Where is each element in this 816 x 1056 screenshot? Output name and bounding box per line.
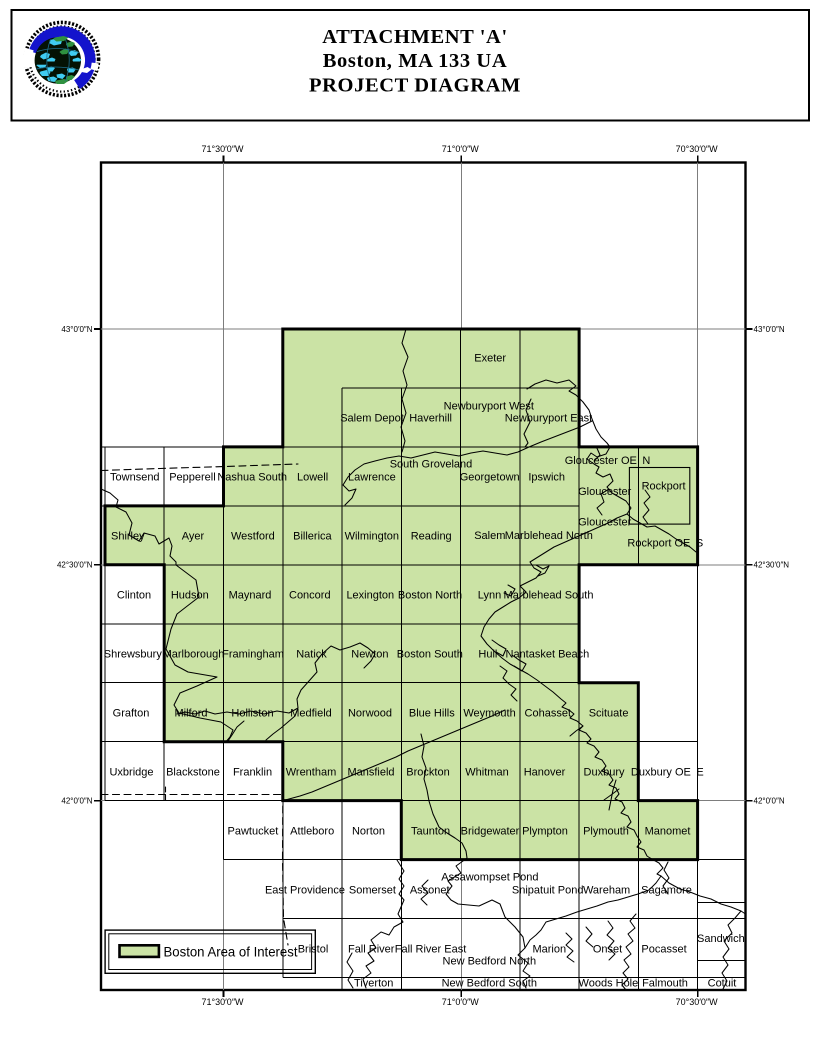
- svg-text:Billerica: Billerica: [293, 530, 332, 542]
- svg-text:Newburyport West: Newburyport West: [444, 401, 534, 413]
- svg-text:PROJECT DIAGRAM: PROJECT DIAGRAM: [309, 75, 521, 97]
- svg-text:Shrewsbury: Shrewsbury: [104, 648, 163, 660]
- svg-text:Taunton: Taunton: [411, 825, 450, 837]
- svg-text:Pocasset: Pocasset: [641, 943, 686, 955]
- svg-text:Cohasset: Cohasset: [525, 707, 571, 719]
- svg-text:Medfield: Medfield: [290, 707, 332, 719]
- svg-text:Attleboro: Attleboro: [290, 825, 334, 837]
- svg-text:Duxbury: Duxbury: [584, 766, 625, 778]
- svg-text:Franklin: Franklin: [233, 766, 272, 778]
- svg-text:ATTACHMENT 'A': ATTACHMENT 'A': [322, 26, 508, 48]
- svg-text:Framingham: Framingham: [222, 648, 284, 660]
- svg-text:Sandwich: Sandwich: [697, 933, 745, 945]
- svg-text:71°0′0″W: 71°0′0″W: [442, 144, 479, 154]
- svg-text:Gloucester: Gloucester: [578, 517, 632, 529]
- svg-text:Gloucester: Gloucester: [578, 486, 632, 498]
- svg-text:42°0′0″N: 42°0′0″N: [754, 796, 785, 805]
- svg-text:Bristol: Bristol: [298, 943, 329, 955]
- svg-text:Woods Hole: Woods Hole: [579, 977, 639, 989]
- svg-text:Lawrence: Lawrence: [348, 472, 396, 484]
- svg-text:Westford: Westford: [231, 530, 275, 542]
- svg-text:Marion: Marion: [532, 943, 566, 955]
- svg-text:Norton: Norton: [352, 825, 385, 837]
- svg-text:Rockport: Rockport: [642, 481, 686, 493]
- svg-text:Reading: Reading: [411, 530, 452, 542]
- svg-text:Milford: Milford: [174, 707, 207, 719]
- svg-text:Hull: Hull: [478, 648, 497, 660]
- svg-text:43°0′0″N: 43°0′0″N: [754, 325, 785, 334]
- svg-text:43°0′0″N: 43°0′0″N: [61, 325, 92, 334]
- svg-text:Plympton: Plympton: [522, 825, 568, 837]
- svg-text:Assonet: Assonet: [410, 884, 450, 896]
- svg-text:Boston North: Boston North: [398, 589, 462, 601]
- svg-text:Townsend: Townsend: [110, 472, 160, 484]
- svg-text:42°0′0″N: 42°0′0″N: [61, 796, 92, 805]
- svg-text:Whitman: Whitman: [465, 766, 508, 778]
- svg-text:Duxbury OE E: Duxbury OE E: [631, 766, 704, 778]
- svg-text:70°30′0″W: 70°30′0″W: [676, 997, 718, 1007]
- svg-text:71°30′0″W: 71°30′0″W: [202, 144, 244, 154]
- svg-text:Tiverton: Tiverton: [354, 977, 393, 989]
- svg-text:Nantasket Beach: Nantasket Beach: [506, 648, 590, 660]
- svg-text:Nashua South: Nashua South: [217, 472, 287, 484]
- svg-text:Exeter: Exeter: [474, 353, 506, 365]
- svg-text:East Providence: East Providence: [265, 884, 345, 896]
- svg-text:Scituate: Scituate: [589, 707, 629, 719]
- svg-text:Gloucester OE N: Gloucester OE N: [565, 455, 651, 467]
- svg-text:Falmouth: Falmouth: [642, 977, 688, 989]
- svg-text:Norwood: Norwood: [348, 707, 392, 719]
- svg-text:Salem: Salem: [474, 530, 505, 542]
- svg-text:Lowell: Lowell: [297, 472, 328, 484]
- svg-text:42°30′0″N: 42°30′0″N: [754, 561, 790, 570]
- svg-text:Bridgewater: Bridgewater: [461, 825, 520, 837]
- svg-text:Haverhill: Haverhill: [409, 412, 452, 424]
- svg-text:Boston South: Boston South: [397, 648, 463, 660]
- svg-text:Clinton: Clinton: [117, 589, 151, 601]
- svg-text:Uxbridge: Uxbridge: [109, 766, 153, 778]
- svg-text:Marblehead North: Marblehead North: [505, 530, 593, 542]
- svg-text:Holliston: Holliston: [231, 707, 273, 719]
- svg-text:Fall River: Fall River: [348, 943, 395, 955]
- svg-text:Wrentham: Wrentham: [286, 766, 337, 778]
- svg-text:Ayer: Ayer: [182, 530, 205, 542]
- svg-text:Brockton: Brockton: [406, 766, 449, 778]
- svg-text:Assawompset Pond: Assawompset Pond: [441, 872, 538, 884]
- svg-text:Georgetown: Georgetown: [460, 472, 520, 484]
- svg-text:Hudson: Hudson: [171, 589, 209, 601]
- svg-text:Newton: Newton: [351, 648, 388, 660]
- svg-text:Maynard: Maynard: [229, 589, 272, 601]
- svg-text:Marlborough: Marlborough: [163, 648, 225, 660]
- svg-text:Onset: Onset: [593, 943, 622, 955]
- svg-text:South Groveland: South Groveland: [390, 459, 473, 471]
- svg-text:Natick: Natick: [296, 648, 327, 660]
- svg-text:71°0′0″W: 71°0′0″W: [442, 997, 479, 1007]
- svg-text:Somerset: Somerset: [349, 884, 396, 896]
- svg-text:Hanover: Hanover: [524, 766, 566, 778]
- svg-text:Grafton: Grafton: [113, 707, 150, 719]
- svg-text:Blue Hills: Blue Hills: [409, 707, 455, 719]
- svg-text:Pawtucket: Pawtucket: [228, 825, 279, 837]
- svg-text:Rockport OE S: Rockport OE S: [627, 537, 703, 549]
- svg-text:Wareham: Wareham: [583, 884, 630, 896]
- svg-text:Cotuit: Cotuit: [708, 977, 737, 989]
- svg-text:Fall River East: Fall River East: [395, 943, 467, 955]
- svg-text:New Bedford North: New Bedford North: [443, 955, 537, 967]
- svg-text:Lynn: Lynn: [478, 589, 501, 601]
- svg-text:70°30′0″W: 70°30′0″W: [676, 144, 718, 154]
- svg-text:Plymouth: Plymouth: [583, 825, 629, 837]
- svg-text:Lexington: Lexington: [346, 589, 394, 601]
- svg-text:Ipswich: Ipswich: [528, 472, 565, 484]
- svg-text:Boston Area of Interest: Boston Area of Interest: [164, 944, 298, 959]
- svg-text:Weymouth: Weymouth: [463, 707, 515, 719]
- svg-text:42°30′0″N: 42°30′0″N: [57, 561, 93, 570]
- svg-text:71°30′0″W: 71°30′0″W: [202, 997, 244, 1007]
- svg-text:Blackstone: Blackstone: [166, 766, 220, 778]
- svg-text:Manomet: Manomet: [645, 825, 691, 837]
- svg-text:Concord: Concord: [289, 589, 331, 601]
- svg-text:Marblehead South: Marblehead South: [504, 589, 594, 601]
- svg-text:New Bedford South: New Bedford South: [442, 977, 537, 989]
- svg-text:Newburyport East: Newburyport East: [505, 412, 592, 424]
- svg-text:Boston, MA 133 UA: Boston, MA 133 UA: [323, 50, 507, 72]
- svg-text:Salem Depot: Salem Depot: [340, 412, 404, 424]
- svg-text:Shirley: Shirley: [111, 530, 145, 542]
- svg-text:Mansfield: Mansfield: [347, 766, 394, 778]
- svg-text:Pepperell: Pepperell: [169, 472, 215, 484]
- svg-text:Wilmington: Wilmington: [345, 530, 399, 542]
- svg-text:Snipatuit Pond: Snipatuit Pond: [512, 884, 584, 896]
- svg-text:Sagamore: Sagamore: [641, 884, 692, 896]
